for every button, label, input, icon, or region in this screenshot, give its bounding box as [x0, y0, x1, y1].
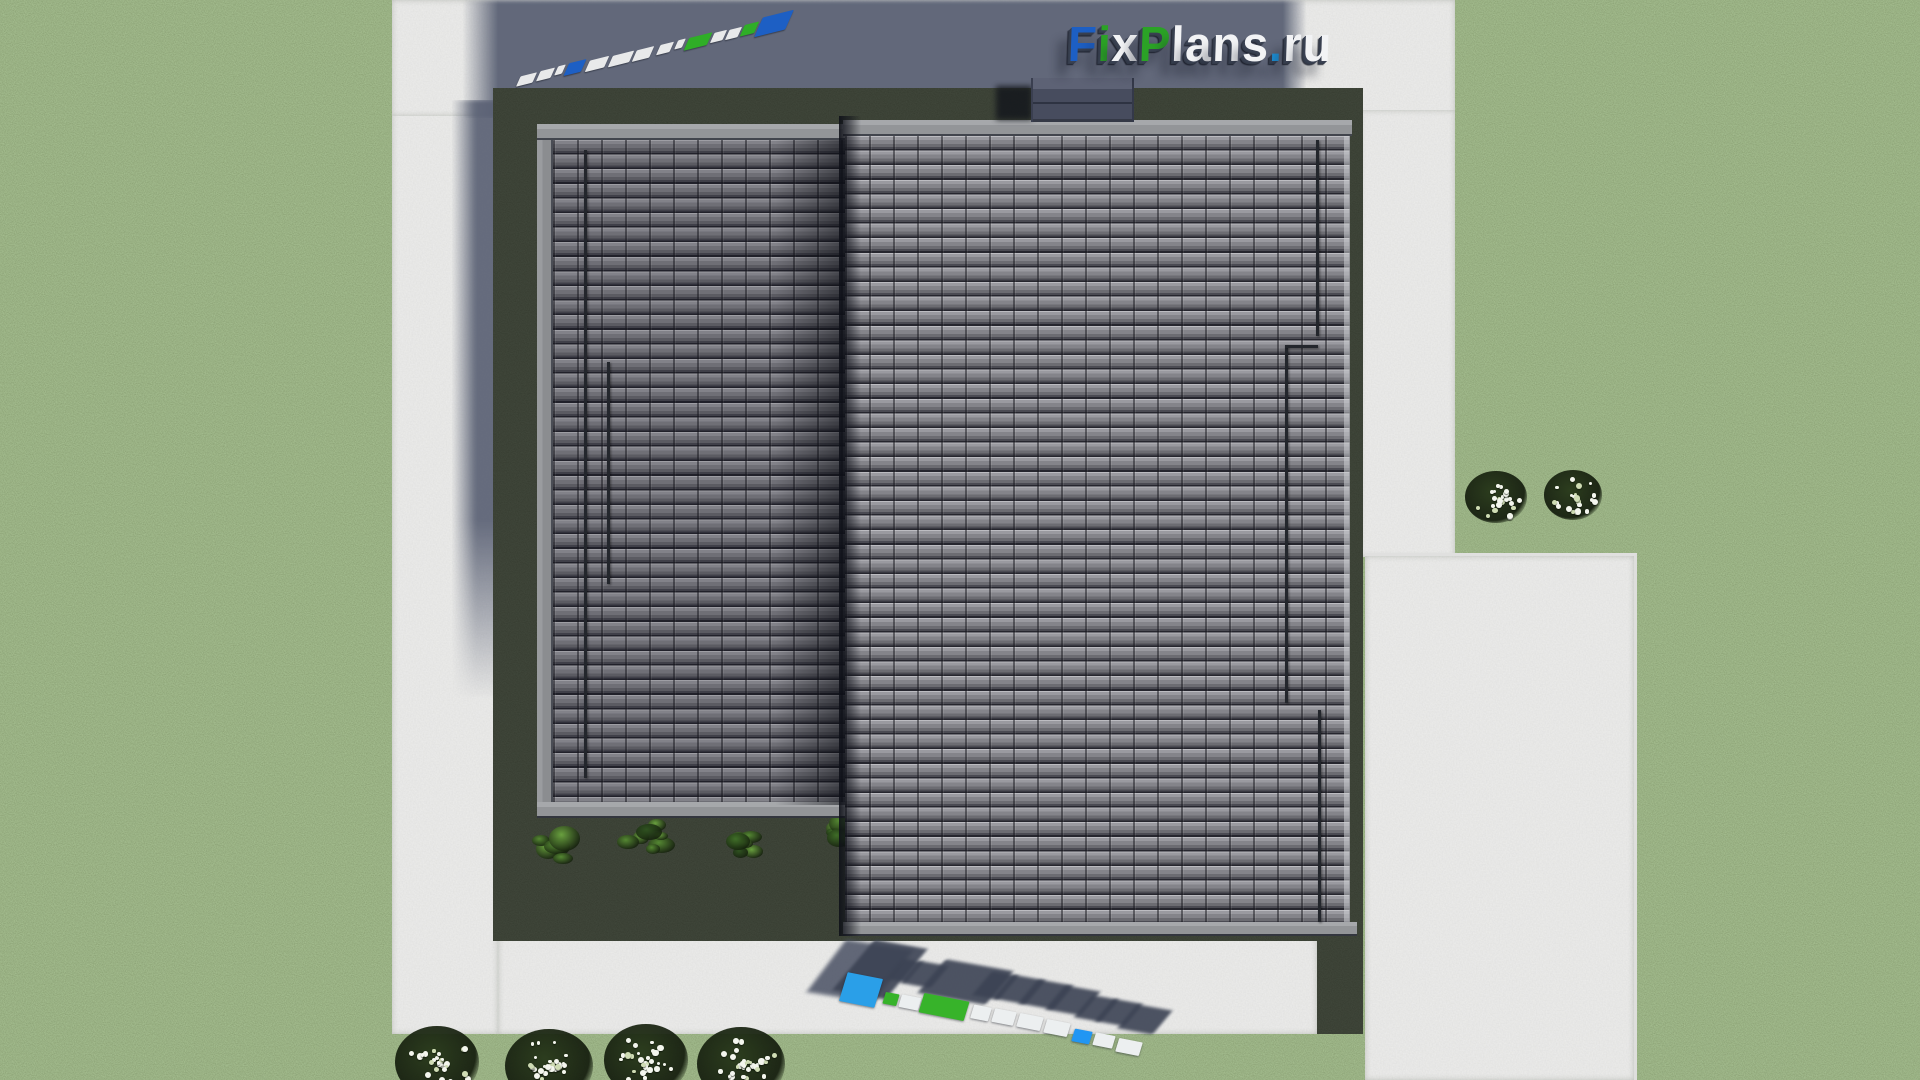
garage-roof [537, 124, 845, 818]
snow-guard-rail [584, 150, 587, 778]
flower-dot [1496, 502, 1502, 508]
flower-dot [1577, 503, 1582, 508]
flower-dot [441, 1058, 444, 1061]
logo-letter: x [1111, 16, 1140, 72]
flower-dot [1570, 477, 1575, 482]
flower-dot [1556, 504, 1561, 509]
flower-dot [1492, 508, 1497, 513]
flower-dot [1592, 493, 1596, 497]
flower-dot [1566, 506, 1572, 512]
main-roof-right-verge [1344, 136, 1350, 922]
flower-dot [432, 1049, 435, 1052]
logo-letter: n [1212, 16, 1244, 72]
shrub [646, 844, 660, 854]
flower-dot [625, 1052, 631, 1058]
flower-dot [733, 1038, 739, 1044]
snow-guard-rail [1316, 140, 1319, 336]
snow-guard-rail-hook [1285, 345, 1318, 348]
flower-dot [637, 1052, 640, 1055]
flower-dot [742, 1064, 746, 1068]
flower-dot [640, 1070, 646, 1076]
flower-dot [647, 1067, 652, 1072]
flower-dot [762, 1074, 767, 1079]
flower-dot [564, 1054, 568, 1058]
flower-dot [739, 1039, 744, 1044]
flower-dot [641, 1063, 645, 1067]
snow-guard-rail [607, 362, 610, 584]
flower-dot [652, 1050, 658, 1056]
logo-letter: F [1067, 16, 1099, 72]
flower-dot [553, 1041, 556, 1044]
main-roof-tiles [845, 136, 1350, 922]
flower-dot [638, 1057, 644, 1063]
chimney [1031, 78, 1134, 122]
logo-letter: u [1302, 16, 1334, 72]
shrub [549, 826, 580, 851]
flower-dot [462, 1071, 468, 1077]
flower-dot [730, 1054, 736, 1060]
flower-dot [531, 1042, 534, 1045]
flower-dot [529, 1064, 534, 1069]
flower-dot [1511, 506, 1516, 511]
fixplans-logo: FixPlans.ru [1067, 19, 1333, 68]
site-plan-render: FixPlans.ru [0, 0, 1920, 1080]
garage-roof-left-eave [537, 124, 553, 818]
flower-dot [755, 1067, 760, 1072]
flower-dot [619, 1058, 622, 1061]
flower-dot [543, 1071, 548, 1076]
flower-dot [654, 1066, 659, 1071]
main-roof [839, 116, 1360, 941]
flower-dot [718, 1069, 723, 1074]
flower-dot [421, 1053, 425, 1057]
logo-letter: a [1184, 16, 1213, 72]
roof-junction-band [839, 116, 861, 936]
logo-letter: s [1241, 16, 1270, 72]
logo-letter: P [1138, 16, 1172, 72]
flower-dot [434, 1067, 439, 1072]
flower-dot [1491, 504, 1495, 508]
shrub [726, 833, 749, 850]
flower-dot [548, 1060, 552, 1064]
concrete-driveway-pad [1365, 553, 1637, 1080]
flower-dot [643, 1076, 647, 1080]
flower-dot [650, 1041, 654, 1045]
flower-dot [669, 1067, 673, 1071]
main-roof-top-eave [843, 120, 1352, 136]
snow-guard-rail [1318, 710, 1321, 922]
flower-dot [442, 1067, 447, 1072]
logo-letter: r [1282, 16, 1303, 72]
flower-dot [555, 1064, 561, 1070]
shrub [617, 835, 638, 849]
shadow-lawn-strip-bottom-right [1317, 935, 1363, 1034]
garage-roof-top-eave [537, 124, 845, 140]
flower-dot [537, 1041, 541, 1045]
flower-dot [749, 1061, 752, 1064]
flower-dot [1574, 495, 1580, 501]
flower-dot [1496, 484, 1500, 488]
flower-dot [1492, 496, 1497, 501]
flower-dot [772, 1053, 777, 1058]
chimney-shadow [996, 86, 1032, 120]
concrete-right-walkway [1360, 110, 1455, 557]
snow-guard-rail [1285, 345, 1288, 703]
flower-dot [734, 1048, 739, 1053]
flower-dot [429, 1060, 434, 1065]
flower-dot [632, 1070, 636, 1074]
roof-junction-shadow [775, 140, 845, 805]
flower-dot [562, 1070, 566, 1074]
flower-dot [649, 1059, 654, 1064]
main-roof-bottom-eave [843, 922, 1357, 936]
